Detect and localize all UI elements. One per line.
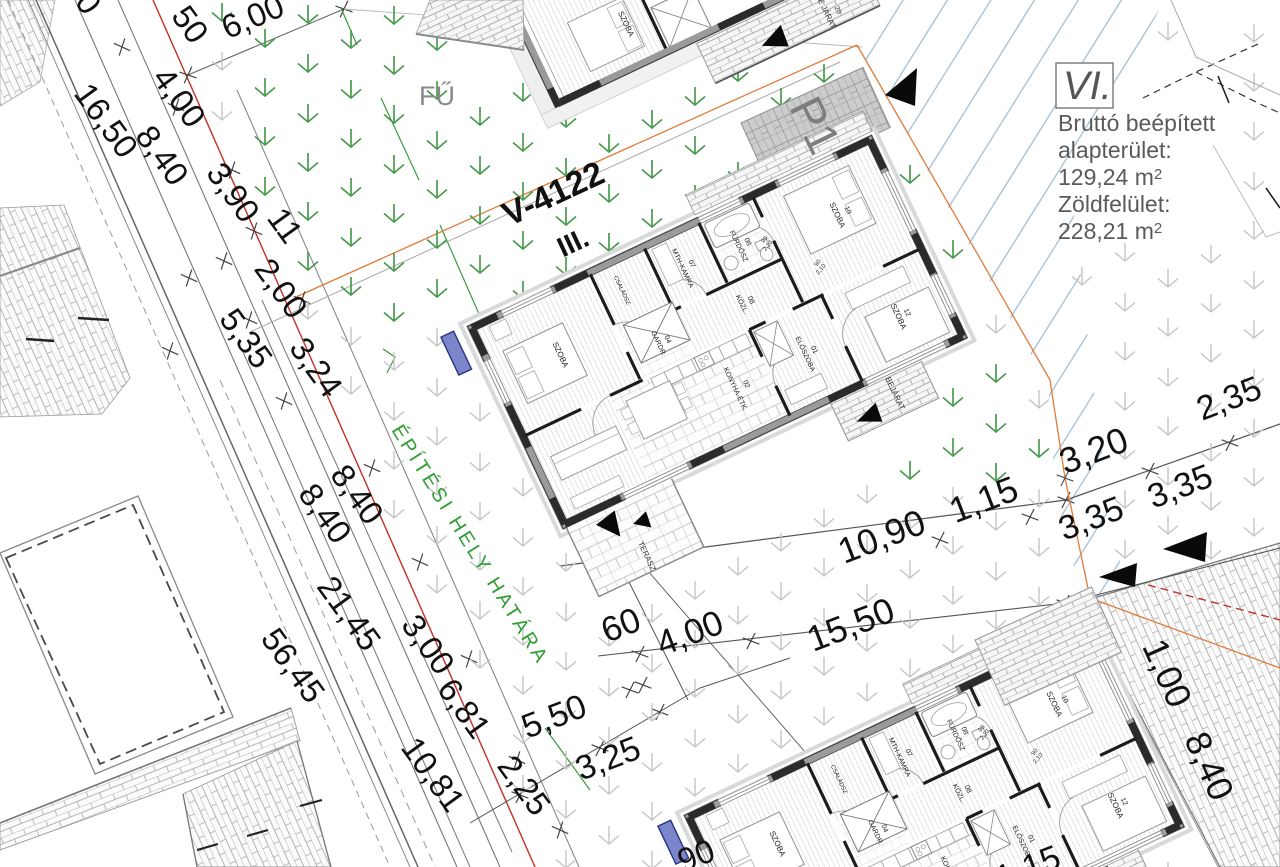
svg-text:129,24 m2: 129,24 m2 [1058, 164, 1162, 190]
svg-text:228,21 m2: 228,21 m2 [1058, 218, 1162, 244]
svg-text:VI.: VI. [1063, 64, 1112, 108]
svg-text:Zöldfelület:: Zöldfelület: [1058, 191, 1171, 217]
svg-text:FŰ: FŰ [419, 80, 455, 111]
svg-text:Bruttó beépített: Bruttó beépített [1058, 110, 1216, 136]
svg-text:alapterület:: alapterület: [1058, 137, 1172, 163]
